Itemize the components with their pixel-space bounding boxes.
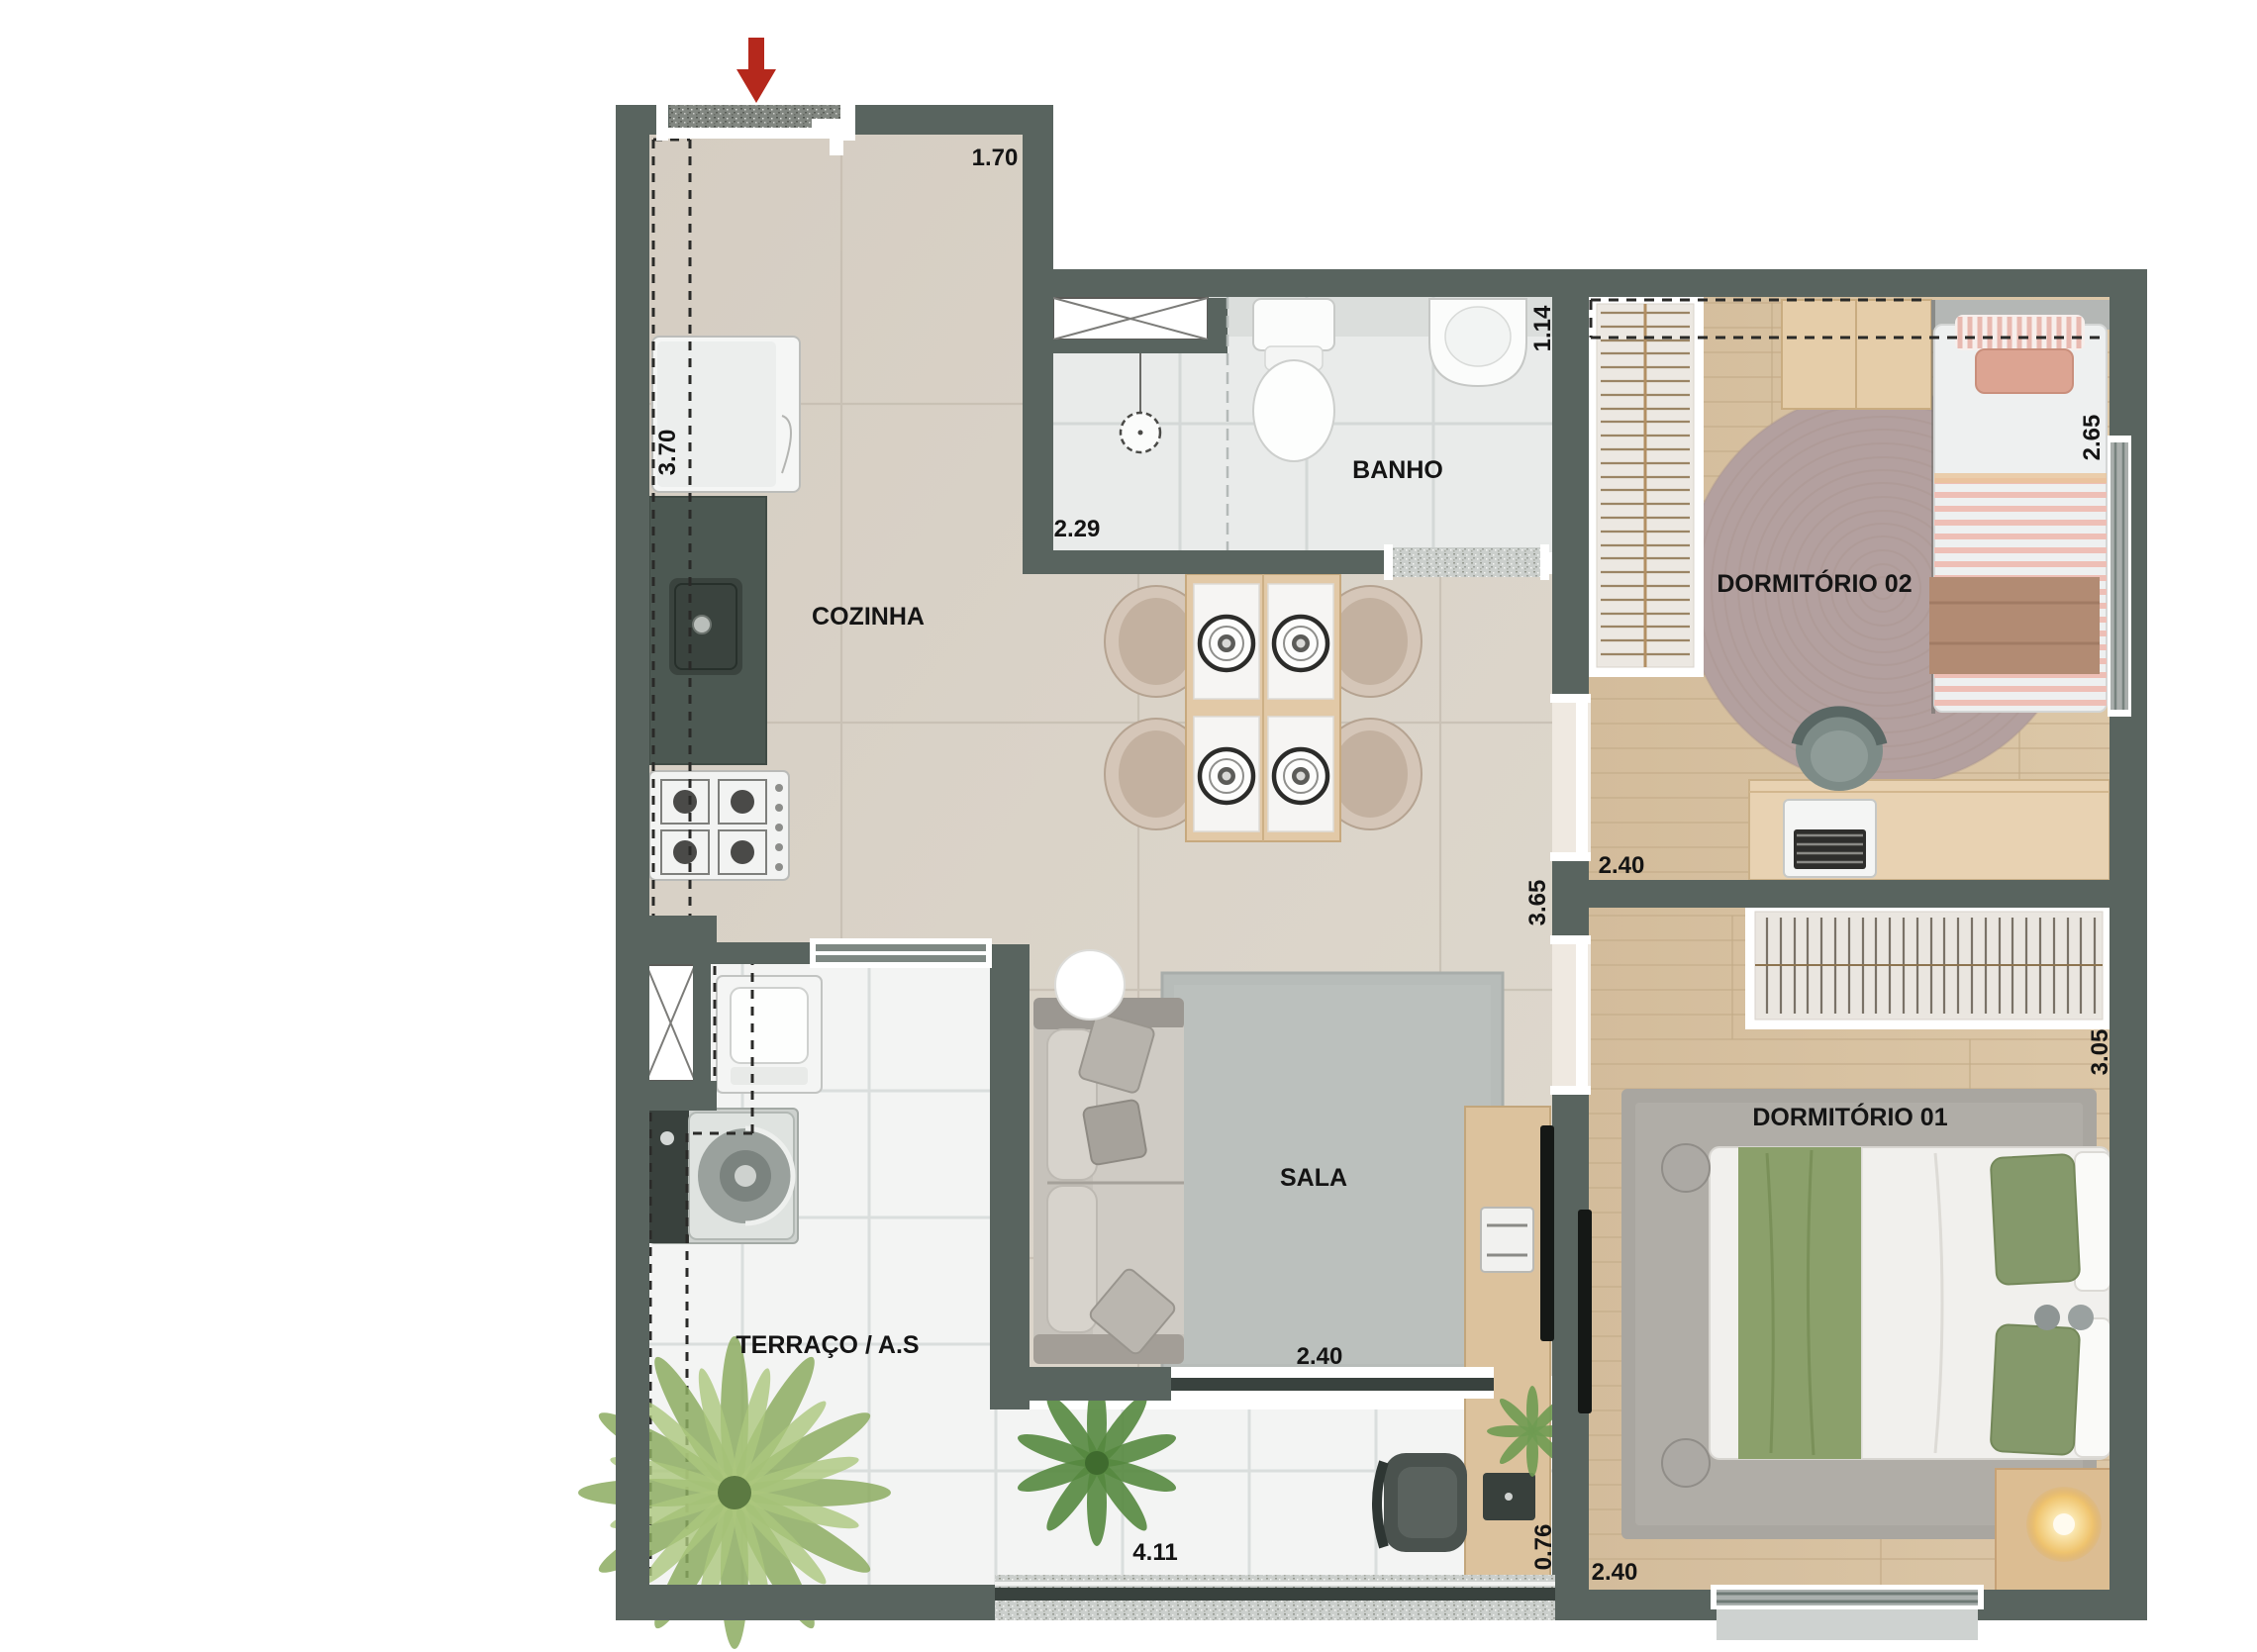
svg-text:2.40: 2.40 xyxy=(1592,1559,1638,1586)
svg-text:COZINHA: COZINHA xyxy=(812,603,925,631)
svg-text:DORMITÓRIO 01: DORMITÓRIO 01 xyxy=(1752,1102,1947,1131)
svg-text:DORMITÓRIO 02: DORMITÓRIO 02 xyxy=(1717,568,1912,598)
svg-text:2.40: 2.40 xyxy=(1599,852,1645,879)
svg-text:0.76: 0.76 xyxy=(1530,1524,1557,1571)
svg-text:2.29: 2.29 xyxy=(1054,516,1101,542)
svg-text:2.40: 2.40 xyxy=(1297,1343,1343,1370)
svg-text:BANHO: BANHO xyxy=(1352,456,1443,484)
svg-text:3.65: 3.65 xyxy=(1524,880,1551,926)
svg-text:TERRAÇO / A.S: TERRAÇO / A.S xyxy=(736,1331,919,1359)
svg-text:1.14: 1.14 xyxy=(1529,305,1556,351)
svg-text:3.70: 3.70 xyxy=(654,430,681,476)
svg-text:SALA: SALA xyxy=(1280,1164,1347,1192)
svg-text:1.70: 1.70 xyxy=(972,145,1019,171)
svg-text:3.05: 3.05 xyxy=(2087,1029,2113,1076)
svg-text:2.65: 2.65 xyxy=(2079,415,2106,461)
svg-text:4.11: 4.11 xyxy=(1132,1539,1177,1566)
